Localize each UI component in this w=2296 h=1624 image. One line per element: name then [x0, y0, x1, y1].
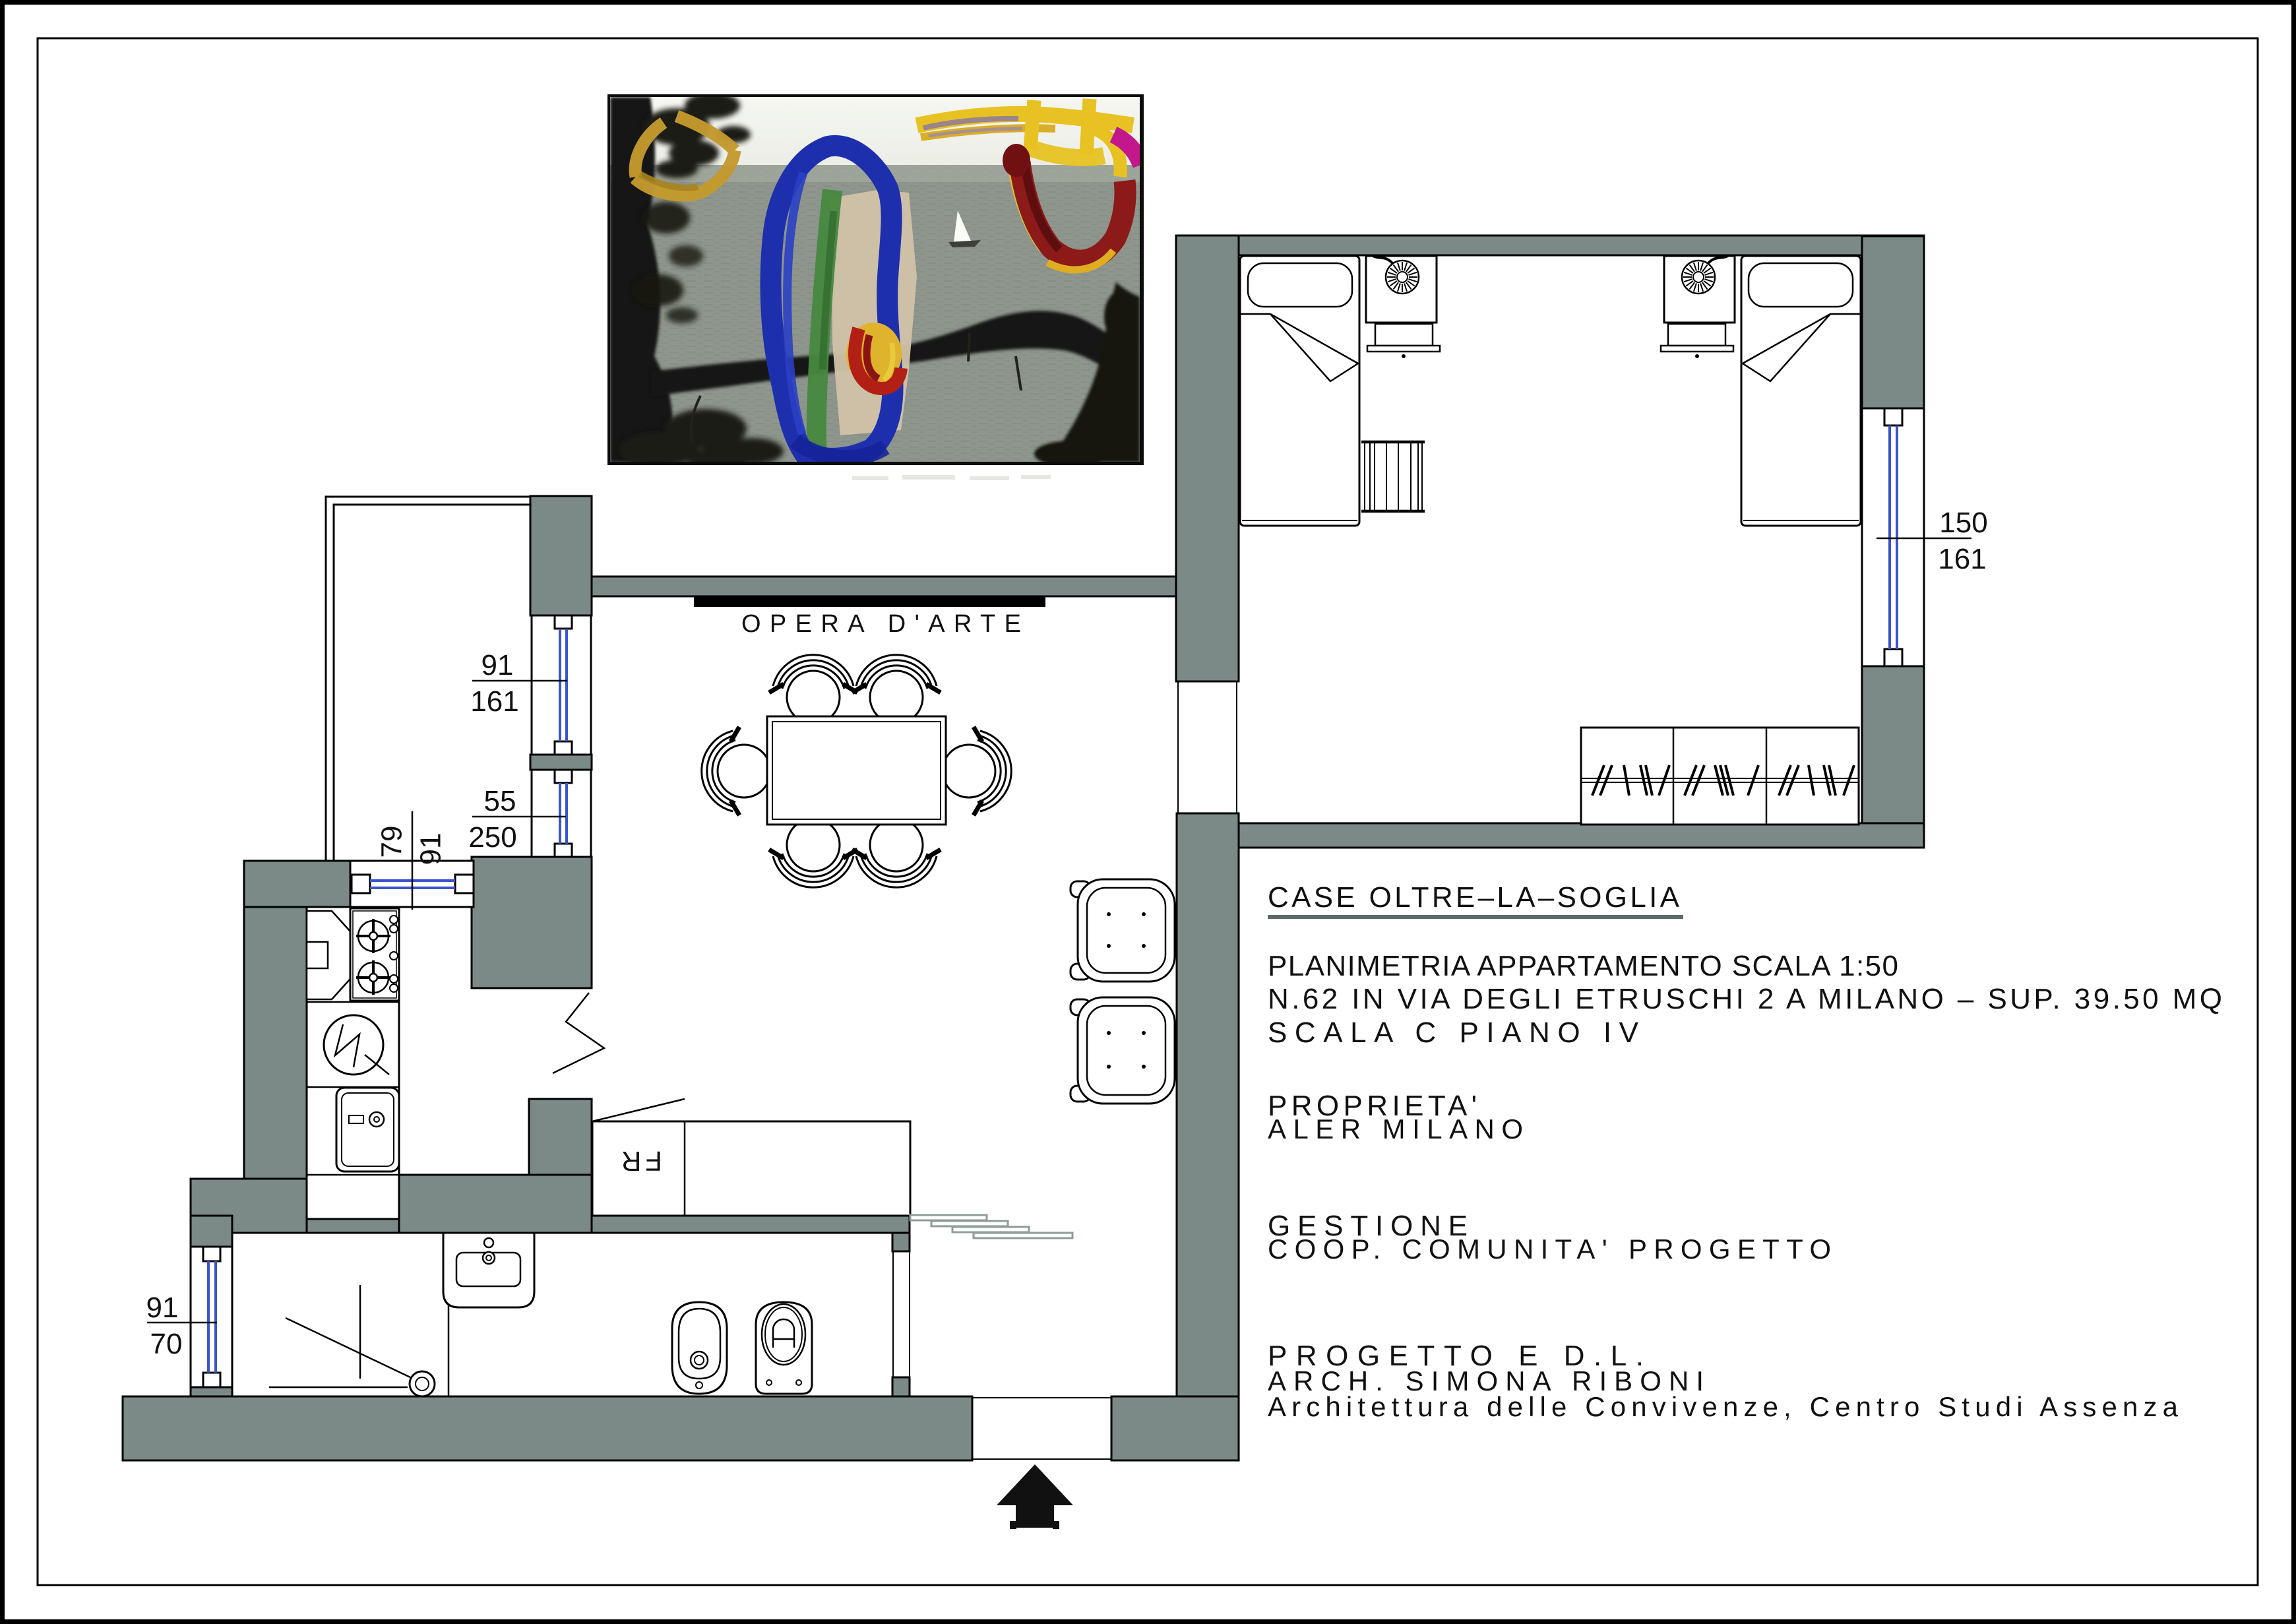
svg-text:91: 91	[146, 1292, 179, 1324]
svg-text:161: 161	[1938, 543, 1986, 575]
svg-text:55: 55	[484, 785, 516, 817]
svg-text:91: 91	[481, 649, 514, 681]
svg-text:Architettura delle Convivenze,: Architettura delle Convivenze, Centro St…	[1268, 1391, 2182, 1422]
svg-text:ALER MILANO: ALER MILANO	[1268, 1113, 1527, 1144]
svg-text:70: 70	[150, 1328, 183, 1360]
svg-text:161: 161	[470, 685, 518, 718]
svg-text:91: 91	[415, 833, 447, 865]
svg-text:150: 150	[1939, 507, 1987, 539]
svg-text:250: 250	[468, 821, 516, 854]
svg-text:FR: FR	[617, 1146, 662, 1177]
svg-text:PLANIMETRIA APPARTAMENTO SCALA: PLANIMETRIA APPARTAMENTO SCALA 1:50	[1268, 950, 1902, 982]
svg-text:COOP. COMUNITA' PROGETTO: COOP. COMUNITA' PROGETTO	[1268, 1234, 1835, 1265]
svg-text:N.62 IN VIA DEGLI ETRUSCHI 2 A: N.62 IN VIA DEGLI ETRUSCHI 2 A MILANO – …	[1268, 983, 2226, 1015]
svg-text:79: 79	[376, 826, 408, 858]
svg-text:CASE OLTRE–LA–SOGLIA: CASE OLTRE–LA–SOGLIA	[1268, 881, 1683, 914]
